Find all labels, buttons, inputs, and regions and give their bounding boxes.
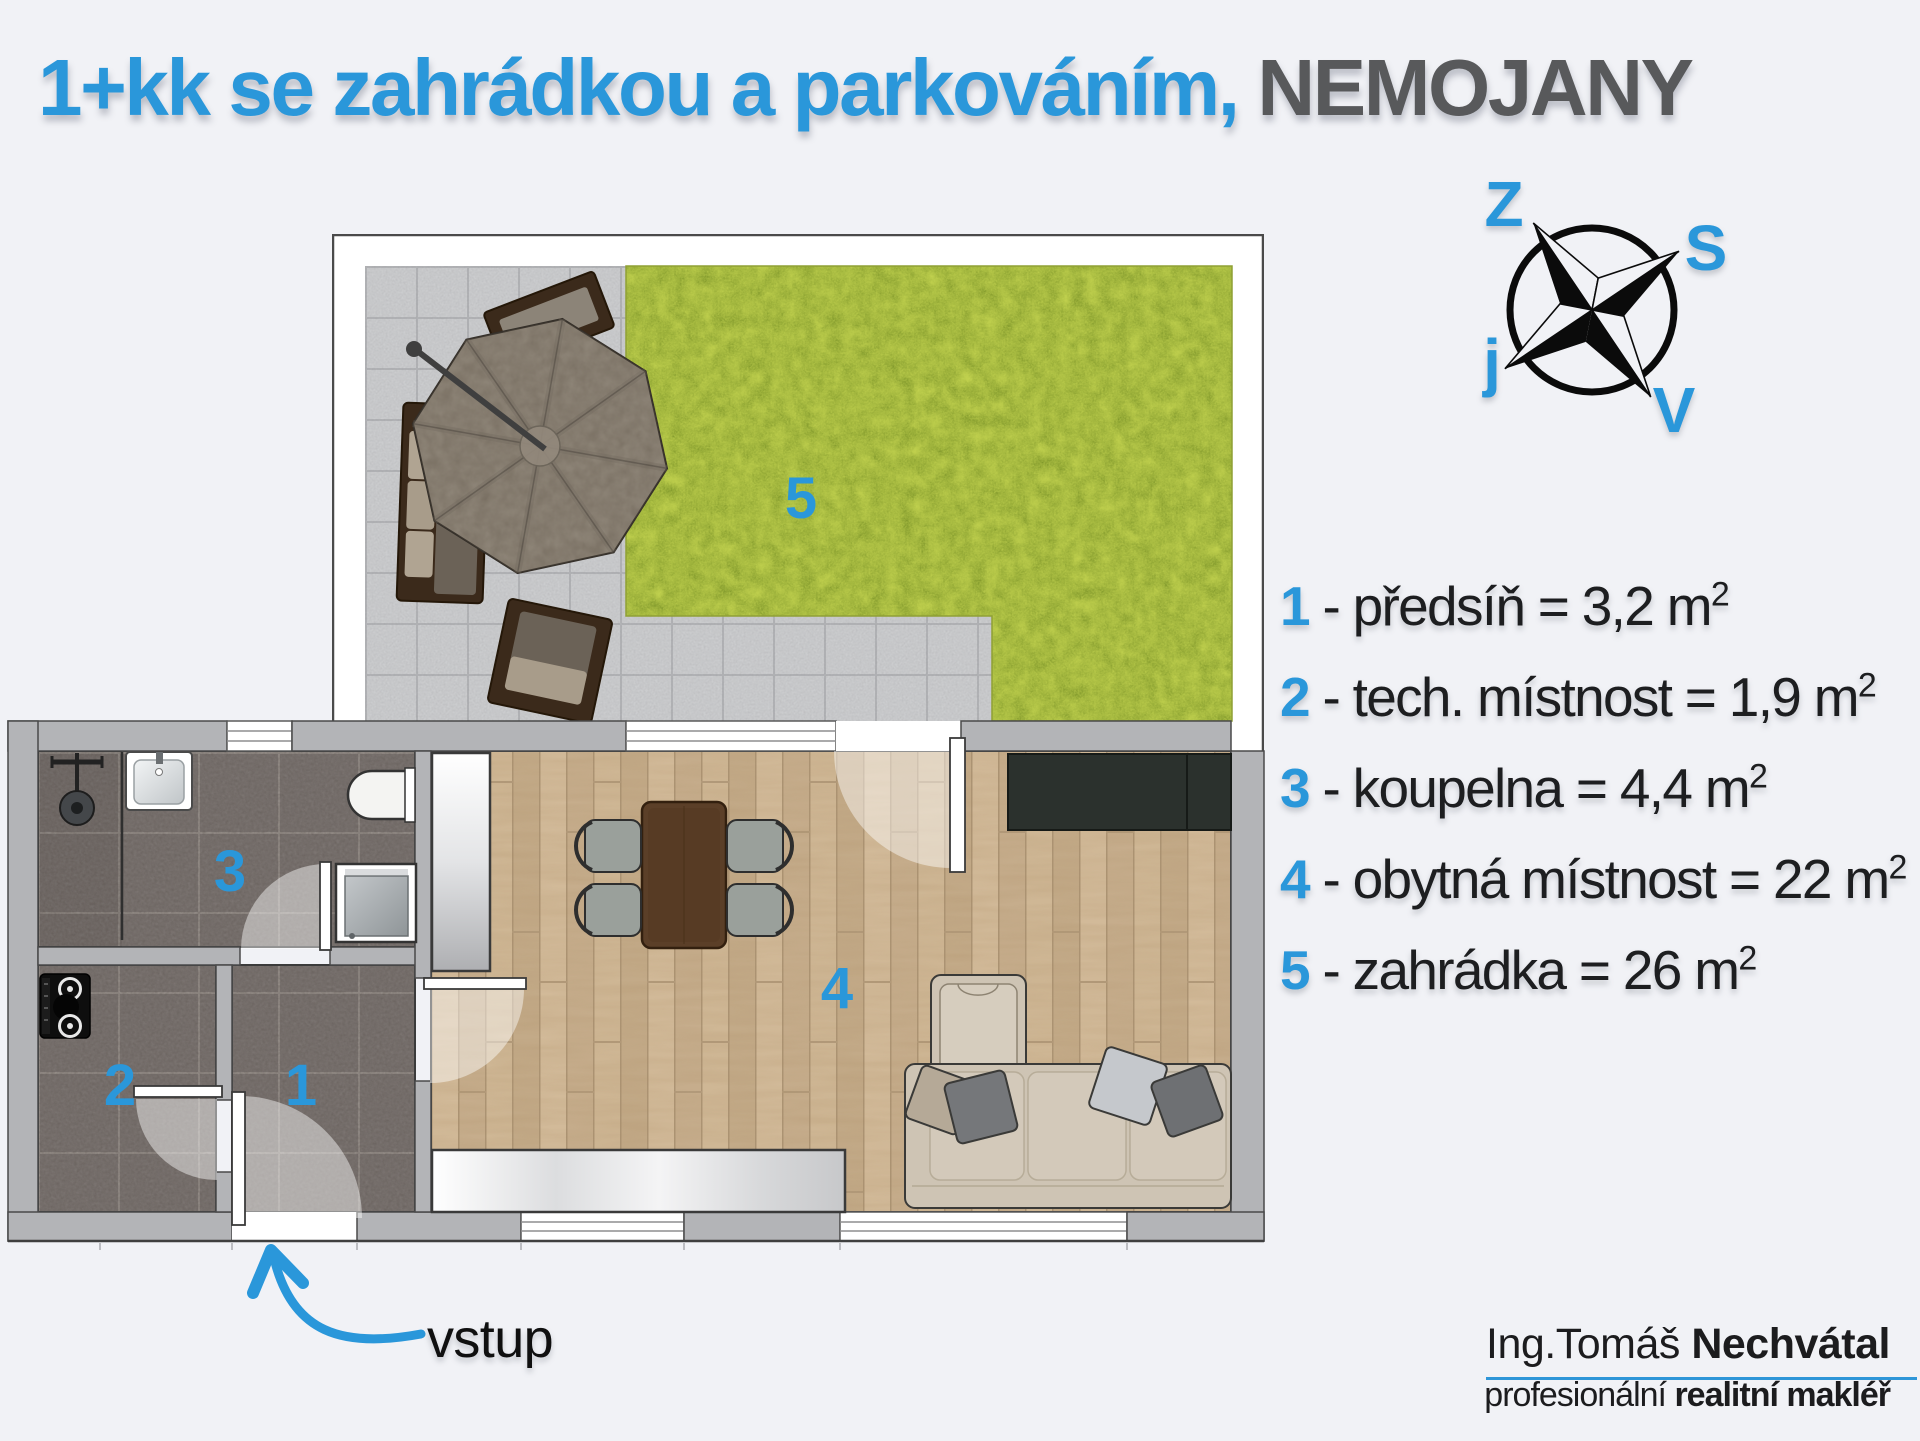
svg-text:j: j (1482, 326, 1501, 398)
svg-text:3: 3 (214, 839, 246, 904)
svg-text:1: 1 (285, 1053, 317, 1118)
svg-text:5: 5 (785, 466, 817, 531)
svg-text:V: V (1653, 374, 1696, 446)
svg-text:S: S (1685, 212, 1728, 284)
svg-text:4: 4 (821, 956, 853, 1021)
svg-text:2: 2 (104, 1053, 136, 1118)
svg-text:Z: Z (1484, 168, 1523, 240)
